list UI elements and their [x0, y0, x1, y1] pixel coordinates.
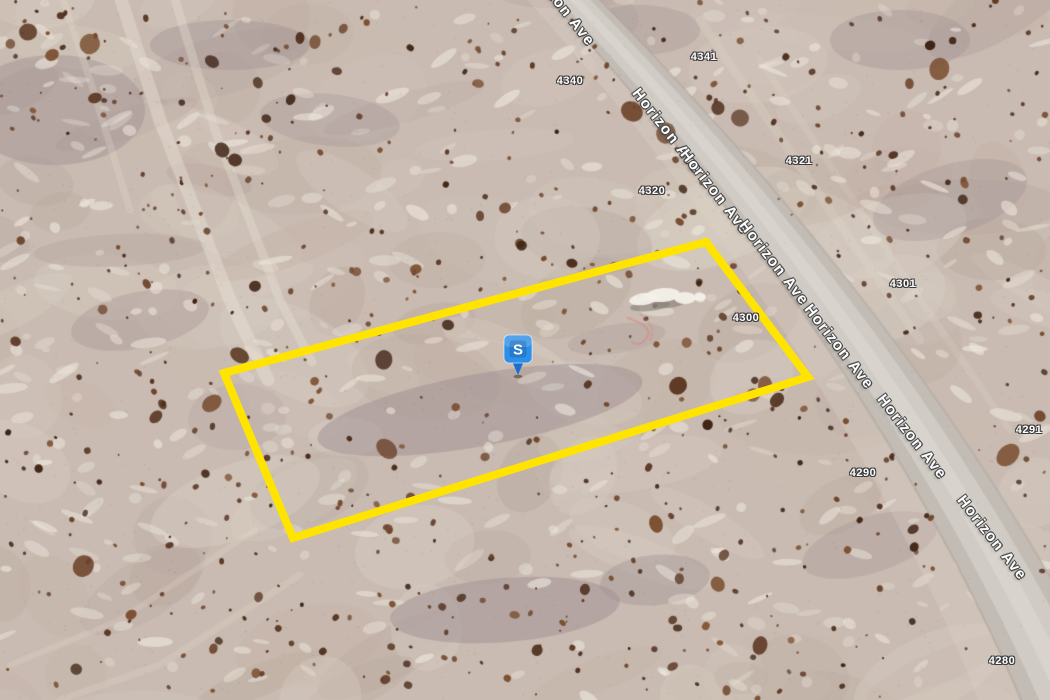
- parcel-number-label: 4321: [786, 155, 812, 167]
- marker-shadow: [514, 375, 523, 379]
- parcel-number-label: 4320: [639, 185, 665, 197]
- parcel-number-label: 4300: [733, 312, 759, 324]
- marker-label: S: [513, 342, 523, 359]
- saved-place-marker[interactable]: S: [501, 332, 535, 380]
- parcel-number-label: 4301: [890, 278, 916, 290]
- parcel-number-label: 4341: [691, 51, 717, 63]
- satellite-map-view[interactable]: Horizon Ave Horizon Ave Horizon Ave Hori…: [0, 0, 1050, 700]
- parcel-number-label: 4290: [850, 467, 876, 479]
- parcel-number-label: 4340: [557, 75, 583, 87]
- parcel-number-label: 4291: [1016, 424, 1042, 436]
- parcel-number-label: 4280: [989, 655, 1015, 667]
